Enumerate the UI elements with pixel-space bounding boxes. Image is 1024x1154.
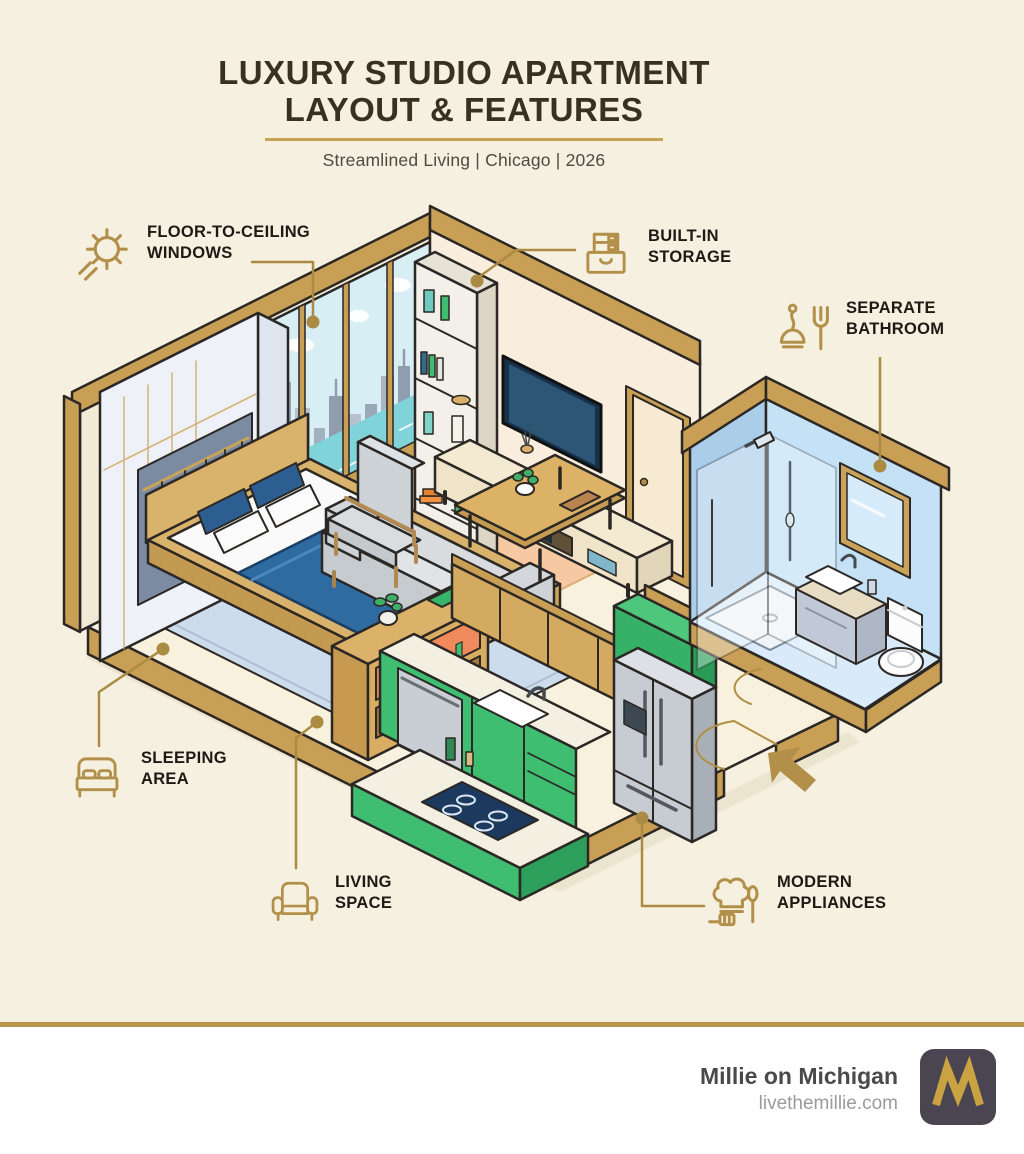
feature-windows: FLOOR-TO-CEILING WINDOWS bbox=[72, 222, 310, 286]
feature-sleeping: SLEEPING AREA bbox=[66, 748, 227, 806]
feature-storage: BUILT-IN STORAGE bbox=[577, 226, 731, 286]
storage-drawer-icon bbox=[577, 226, 635, 286]
feature-living: LIVING SPACE bbox=[268, 872, 392, 930]
apartment-illustration bbox=[0, 0, 1024, 1154]
bottle bbox=[446, 738, 455, 760]
feature-appliances: MODERN APPLIANCES bbox=[704, 872, 886, 934]
brand-block: Millie on Michigan livethemillie.com bbox=[700, 1061, 898, 1117]
feature-label: SLEEPING AREA bbox=[141, 748, 227, 790]
plant-pot bbox=[516, 483, 534, 495]
shaker bbox=[466, 752, 473, 766]
feature-label: LIVING SPACE bbox=[335, 872, 392, 914]
feature-label: MODERN APPLIANCES bbox=[777, 872, 886, 914]
feature-label: FLOOR-TO-CEILING WINDOWS bbox=[147, 222, 310, 264]
brand-website: livethemillie.com bbox=[700, 1091, 898, 1117]
brand-logo bbox=[920, 1049, 996, 1125]
feature-label: SEPARATE BATHROOM bbox=[846, 298, 944, 340]
feature-label: BUILT-IN STORAGE bbox=[648, 226, 731, 268]
plunger-fork-icon bbox=[773, 298, 833, 362]
bed-icon bbox=[66, 748, 128, 806]
sun-icon bbox=[72, 222, 134, 286]
feature-bathroom: SEPARATE BATHROOM bbox=[773, 298, 944, 362]
chef-hat-icon bbox=[704, 872, 764, 934]
footer: Millie on Michigan livethemillie.com bbox=[0, 1022, 1024, 1154]
infographic-page: LUXURY STUDIO APARTMENT LAYOUT & FEATURE… bbox=[0, 0, 1024, 1154]
door-knob bbox=[641, 479, 648, 486]
armchair-icon bbox=[268, 872, 322, 930]
brand-name: Millie on Michigan bbox=[700, 1061, 898, 1091]
